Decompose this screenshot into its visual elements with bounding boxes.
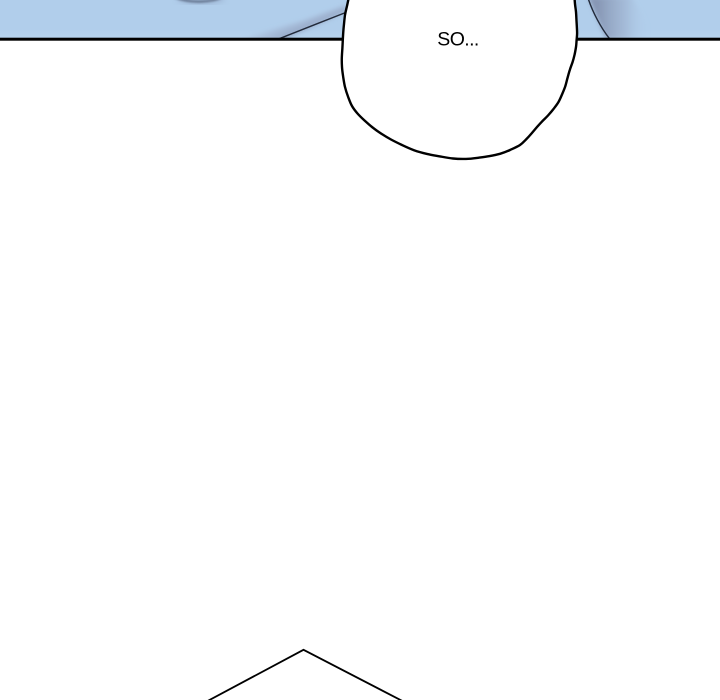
svg-text:SO...: SO... xyxy=(437,29,478,51)
